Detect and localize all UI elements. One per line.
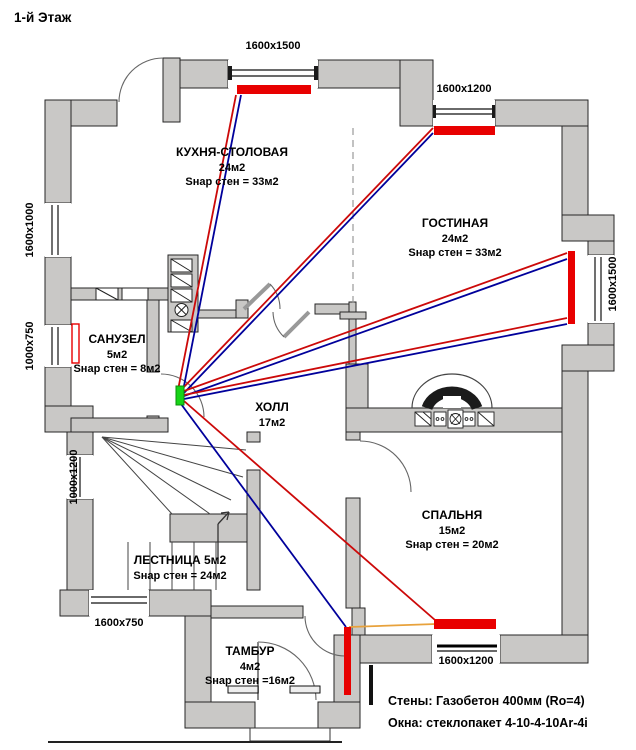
room-label-kitchen-line2: Sнар стен = 33м2 <box>176 175 288 189</box>
room-label-bathroom: САНУЗЕЛ5м2Sнар стен = 8м2 <box>73 332 160 376</box>
room-label-tambur-line1: 4м2 <box>205 660 295 674</box>
room-label-hall: ХОЛЛ17м2 <box>255 400 289 430</box>
window-label-3: 1000x750 <box>24 322 36 371</box>
room-label-kitchen-line1: 24м2 <box>176 161 288 175</box>
room-label-bathroom-line0: САНУЗЕЛ <box>73 332 160 348</box>
pipe-supply-8 <box>184 401 435 620</box>
window-label-0: 1600x1500 <box>245 40 300 52</box>
radiator-3 <box>434 619 496 629</box>
room-label-stairs-line1: Sнар стен = 24м2 <box>133 569 226 583</box>
room-label-kitchen: КУХНЯ-СТОЛОВАЯ24м2Sнар стен = 33м2 <box>176 145 288 189</box>
room-label-bathroom-line2: Sнар стен = 8м2 <box>73 362 160 376</box>
room-label-kitchen-line0: КУХНЯ-СТОЛОВАЯ <box>176 145 288 161</box>
room-label-bedroom-line1: 15м2 <box>405 524 498 538</box>
radiator-1 <box>434 126 495 135</box>
bathroom-fixtures <box>96 288 148 300</box>
section-mark <box>369 665 373 705</box>
entry-door-arc <box>119 58 163 102</box>
plan-title: 1-й Этаж <box>14 10 71 25</box>
window-label-7: 1600x1500 <box>607 256 619 311</box>
window-label-2: 1600x1000 <box>24 202 36 257</box>
window-label-4: 1000x1200 <box>68 449 80 504</box>
pipe-return-7 <box>184 324 567 399</box>
room-label-hall-line0: ХОЛЛ <box>255 400 289 416</box>
room-label-hall-line1: 17м2 <box>255 416 289 430</box>
room-label-bedroom: СПАЛЬНЯ15м2Sнар стен = 20м2 <box>405 508 498 552</box>
radiator-0 <box>237 85 311 94</box>
room-label-tambur: ТАМБУР4м2Sнар стен =16м2 <box>205 644 295 688</box>
room-label-living-line1: 24м2 <box>408 232 501 246</box>
room-label-tambur-line2: Sнар стен =16м2 <box>205 674 295 688</box>
room-label-stairs-line0: ЛЕСТНИЦА 5м2 <box>133 553 226 569</box>
room-label-living: ГОСТИНАЯ24м2Sнар стен = 33м2 <box>408 216 501 260</box>
pipe-return-1 <box>183 95 241 391</box>
radiator-4 <box>344 627 351 695</box>
room-label-bathroom-line1: 5м2 <box>73 348 160 362</box>
window-label-6: 1600x1200 <box>438 655 493 667</box>
window-label-1: 1600x1200 <box>436 83 491 95</box>
floorplan-page: КУХНЯ-СТОЛОВАЯ24м2Sнар стен = 33м2ГОСТИН… <box>0 0 636 750</box>
window-label-5: 1600x750 <box>95 617 144 629</box>
room-label-tambur-line0: ТАМБУР <box>205 644 295 660</box>
room-label-bedroom-line2: Sнар стен = 20м2 <box>405 538 498 552</box>
note-walls-spec: Стены: Газобетон 400мм (Ro=4) <box>388 694 585 708</box>
room-label-stairs: ЛЕСТНИЦА 5м2Sнар стен = 24м2 <box>133 553 226 583</box>
pipe-supply-6 <box>184 318 567 395</box>
room-label-living-line2: Sнар стен = 33м2 <box>408 246 501 260</box>
room-label-bedroom-line0: СПАЛЬНЯ <box>405 508 498 524</box>
radiator-2 <box>568 251 575 324</box>
fireplace <box>412 374 494 428</box>
pipe-supply-0 <box>178 95 236 390</box>
bedroom-door-arc <box>360 441 411 492</box>
pipe-supply-4 <box>184 253 567 391</box>
kitchen-appliances <box>171 259 192 332</box>
note-windows-spec: Окна: стеклопакет 4-10-4-10Ar-4i <box>388 716 588 730</box>
heating-collector <box>176 386 184 405</box>
room-label-living-line0: ГОСТИНАЯ <box>408 216 501 232</box>
